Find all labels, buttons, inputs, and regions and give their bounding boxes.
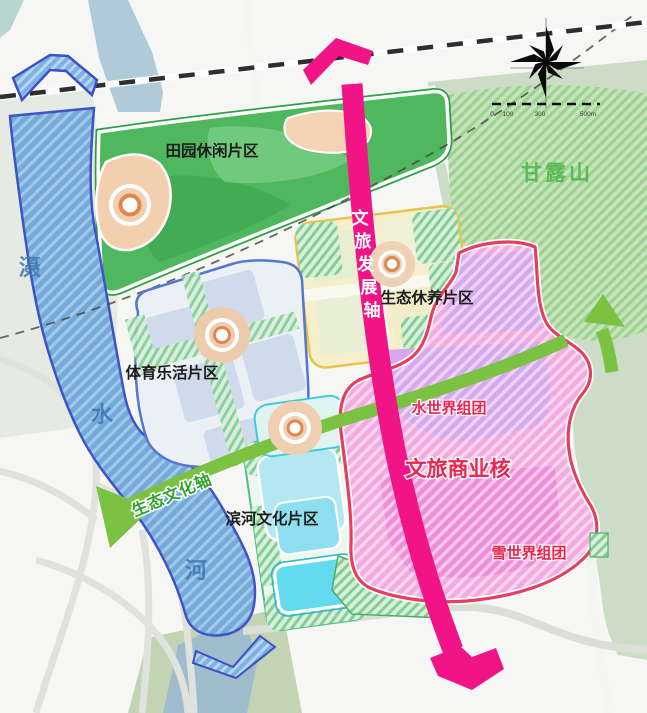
label-water-world-cluster: 水世界组团 (411, 399, 486, 417)
svg-text:发: 发 (357, 254, 376, 274)
label-sports-lohas-zone: 体育乐活片区 (125, 363, 219, 382)
label-snow-world-cluster: 雪世界组团 (491, 544, 566, 562)
svg-text:滠: 滠 (19, 255, 42, 280)
scale-label-300: 300 (535, 111, 546, 118)
label-commercial-core: 文旅商业核 (406, 457, 511, 481)
scale-label-100: 100 (503, 111, 514, 118)
master-plan-map: 0 100 300 500m 田园休闲片区 甘露山 生态休养片区 体育乐活片区 … (0, 0, 647, 713)
svg-text:水: 水 (91, 402, 114, 427)
svg-text:河: 河 (185, 558, 207, 583)
scale-label-0: 0 (490, 111, 494, 118)
svg-text:文: 文 (352, 208, 370, 228)
label-riverside-culture-zone: 滨河文化片区 (225, 509, 319, 528)
node-marker-sports (194, 307, 250, 363)
svg-text:展: 展 (361, 278, 378, 297)
scale-label-500m: 500m (580, 111, 596, 118)
svg-text:旅: 旅 (355, 231, 372, 251)
label-ganlu-mountain: 甘露山 (521, 162, 593, 185)
label-eco-recuperation-zone: 生态休养片区 (380, 288, 474, 307)
svg-text:轴: 轴 (364, 300, 381, 320)
green-patch-right (590, 533, 608, 557)
label-pastoral-zone: 田园休闲片区 (165, 141, 259, 160)
map-canvas: 0 100 300 500m 田园休闲片区 甘露山 生态休养片区 体育乐活片区 … (0, 0, 647, 713)
node-marker-riverside (268, 401, 322, 455)
